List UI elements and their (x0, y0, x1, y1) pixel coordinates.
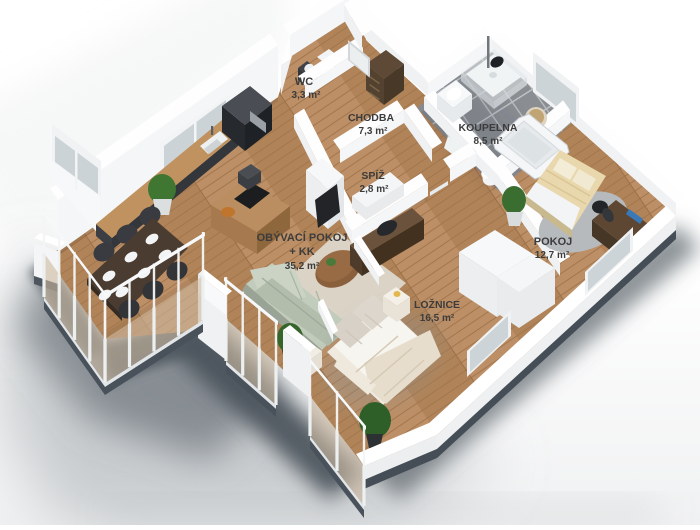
svg-text:7,3 m²: 7,3 m² (359, 126, 389, 137)
svg-text:2,8 m²: 2,8 m² (360, 184, 390, 195)
svg-text:12,7 m²: 12,7 m² (535, 250, 570, 261)
svg-text:8,5 m²: 8,5 m² (474, 136, 504, 147)
svg-text:POKOJ: POKOJ (534, 236, 573, 248)
svg-text:16,5 m²: 16,5 m² (420, 313, 455, 324)
svg-text:SPÍŽ: SPÍŽ (361, 169, 385, 182)
svg-text:KOUPELNA: KOUPELNA (459, 122, 518, 134)
svg-text:LOŽNICE: LOŽNICE (414, 298, 460, 311)
svg-text:+ KK: + KK (289, 246, 314, 258)
svg-text:CHODBA: CHODBA (348, 112, 394, 124)
svg-text:OBÝVACÍ POKOJ: OBÝVACÍ POKOJ (257, 231, 348, 244)
svg-text:35,2 m²: 35,2 m² (285, 261, 320, 272)
svg-text:WC: WC (295, 76, 313, 88)
svg-text:3,3 m²: 3,3 m² (292, 90, 322, 101)
